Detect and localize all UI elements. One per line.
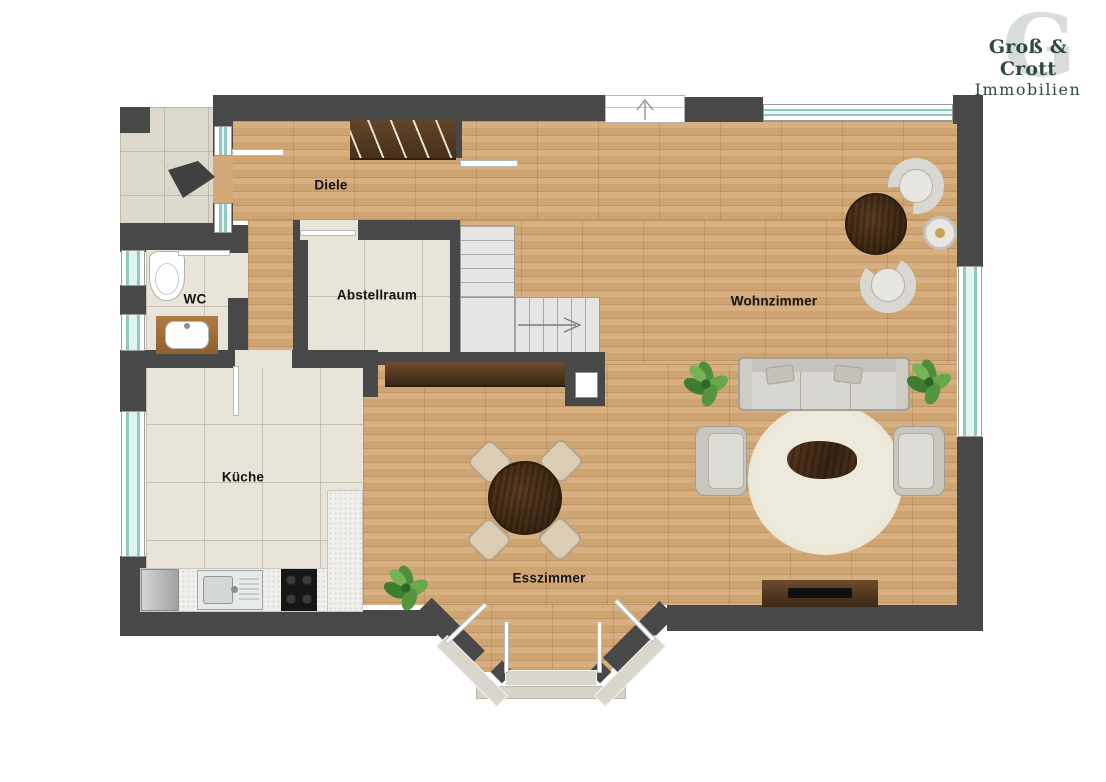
wall-segment [667,605,983,631]
armchair-icon [860,257,916,313]
door-gap [213,156,233,203]
coffee-table-icon [787,441,857,479]
sofa-icon [738,357,910,411]
room-label-wohnzimmer: Wohnzimmer [731,294,818,309]
wall-segment [358,220,460,240]
room-label-diele: Diele [314,178,347,193]
window-icon [121,250,145,286]
door-leaf-icon [597,621,602,673]
brand-logo: G Groß & Crott Immobilien [958,20,1098,94]
wall-segment [228,298,248,355]
armchair-icon [695,426,747,496]
plant-icon [906,358,952,406]
chimney-flue [575,372,598,398]
sink-drainboard [239,578,259,602]
brand-name: Groß & Crott [958,36,1098,80]
sofa-seam [800,372,801,409]
wall-segment [293,220,300,240]
floor-plan-canvas: Diele WC Abstellraum Küche Esszimmer Woh… [0,0,1106,782]
wall-segment [120,610,437,636]
window-icon [121,411,145,557]
wall-segment [120,285,146,315]
door-leaf-icon [178,250,230,256]
wardrobe-icon [350,120,456,160]
door-leaf-icon [504,621,509,673]
staircase-icon [460,225,515,298]
sideboard-icon [385,362,565,387]
plant-icon [683,360,729,408]
door-leaf-icon [300,230,356,236]
armchair-icon [888,158,944,214]
door-leaf-icon [233,366,239,416]
faucet-icon [184,323,190,329]
toilet-bowl [155,263,179,295]
sink-basin [203,576,233,604]
door-leaf-icon [232,149,284,156]
fridge-icon [141,569,179,611]
kitchen-counter [327,490,363,612]
door-gap [235,350,292,368]
wall-segment [953,95,983,124]
hall-floor [232,121,957,221]
entry-direction-arrow-icon [168,161,216,199]
room-label-kueche: Küche [222,470,264,485]
wall-segment [293,220,308,355]
wall-segment [685,97,763,122]
stairs-direction-arrow-icon [518,316,592,334]
sofa-armrest [740,359,752,409]
side-table-center [935,228,945,238]
cooktop-icon [281,569,317,611]
wall-segment [120,107,150,133]
window-icon [763,104,953,121]
pillow-icon [765,364,795,385]
room-label-abstellraum: Abstellraum [337,288,417,303]
armchair-seat [871,268,905,302]
rug-icon [748,403,903,555]
armchair-icon [893,426,945,496]
wall-segment [957,437,983,631]
dining-table-icon [488,461,562,535]
armchair-seat [708,433,744,489]
sidelight-window-icon [214,126,232,156]
wall-segment [213,95,605,121]
door-leaf-icon [460,160,518,167]
staircase-landing [460,297,515,353]
room-label-wc: WC [184,292,207,307]
plant-icon [383,565,429,611]
sidelight-window-icon [214,203,232,233]
window-icon [121,314,145,351]
entrance-door-arrow-icon [634,96,656,122]
room-label-esszimmer: Esszimmer [512,571,585,586]
wall-segment [957,121,983,267]
window-icon [958,266,982,437]
wall-segment [450,220,460,355]
armchair-seat [899,169,933,203]
armchair-seat [898,433,934,489]
bay-window-sill [505,670,597,686]
faucet-icon [231,586,238,593]
door-gap [228,253,248,298]
corridor-floor [248,220,293,368]
pillow-icon [833,364,863,384]
tv-icon [788,588,852,598]
